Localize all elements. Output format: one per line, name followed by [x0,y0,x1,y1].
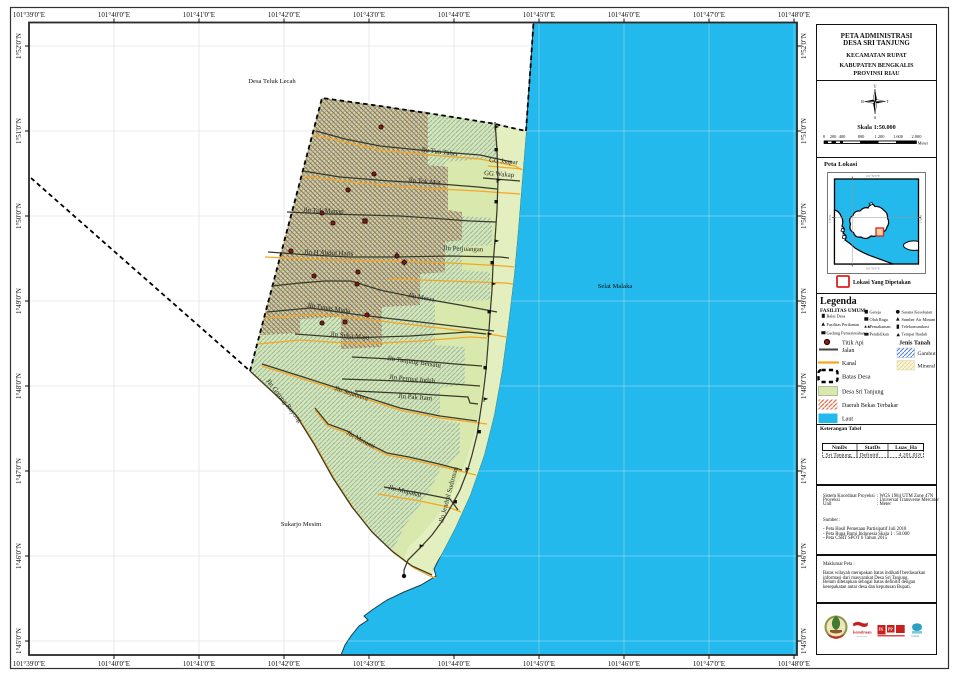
svg-text:1°52'0"N: 1°52'0"N [800,33,808,59]
svg-text:partnership: partnership [857,636,868,638]
svg-text:Luas_Ha: Luas_Ha [895,445,917,451]
svg-text:1.200: 1.200 [875,134,886,139]
svg-text:101°41'0"E: 101°41'0"E [183,11,215,19]
svg-text:NmDs: NmDs [832,445,848,451]
svg-text:101°39'0"E: 101°39'0"E [13,11,45,19]
svg-text:Sarana Kesehatan: Sarana Kesehatan [902,309,934,314]
svg-text:1°49'0"N: 1°49'0"N [800,288,808,314]
svg-text:Sumber Air Minum: Sumber Air Minum [902,317,936,322]
svg-text:1°45'N: 1°45'N [919,214,923,223]
svg-text:Fasilitas Perikanan: Fasilitas Perikanan [827,322,860,327]
svg-text:T: T [886,99,889,104]
svg-text:1°45'0"N: 1°45'0"N [15,628,23,654]
svg-text:GG Jaapar: GG Jaapar [489,157,519,167]
svg-text:Mineral: Mineral [918,364,936,370]
svg-text:Lokasi Yang Dipetakan: Lokasi Yang Dipetakan [853,280,912,286]
svg-text:Daerah Bekas Terbakar: Daerah Bekas Terbakar [842,403,898,409]
svg-text:Olah Raga: Olah Raga [870,317,888,322]
svg-text:Definitif: Definitif [860,451,879,458]
svg-text:kemitraan: kemitraan [853,630,872,635]
svg-text:1°46'0"N: 1°46'0"N [800,543,808,569]
svg-text:101°48'0"E: 101°48'0"E [778,11,810,19]
svg-text:U: U [873,84,876,89]
svg-text:101°43'0"E: 101°43'0"E [353,11,385,19]
svg-text:4.201,018: 4.201,018 [899,452,922,458]
svg-text:S: S [874,115,877,120]
svg-text:1°48'0"N: 1°48'0"N [800,373,808,399]
svg-text:Jln Perjuangan: Jln Perjuangan [443,245,484,253]
svg-text:400: 400 [839,134,846,139]
svg-text:Batas Desa: Batas Desa [842,374,871,381]
svg-text:800: 800 [858,134,865,139]
svg-text:101°44'0"E: 101°44'0"E [438,11,470,19]
svg-text:101°46'0"E: 101°46'0"E [608,11,640,19]
svg-text:Desa Sri Tanjung: Desa Sri Tanjung [842,390,883,396]
svg-text:1°49'0"N: 1°49'0"N [15,288,23,314]
svg-text:1°45'N: 1°45'N [828,214,832,223]
svg-text:1°51'0"N: 1°51'0"N [15,118,23,144]
svg-text:Sri Tanjung: Sri Tanjung [826,452,852,458]
svg-text:Sukarjo Mesim: Sukarjo Mesim [281,521,322,528]
svg-text:JK: JK [879,628,884,632]
svg-text:101°50'0"E: 101°50'0"E [866,174,880,178]
svg-text:Jln Meranti: Jln Meranti [345,430,376,451]
svg-text:Balai Desa: Balai Desa [827,314,846,319]
svg-text:1°48'0"N: 1°48'0"N [15,373,23,399]
svg-text:Pemakaman: Pemakaman [870,324,892,329]
svg-text:101°41'0"E: 101°41'0"E [183,660,215,668]
svg-text:Jln Tok Manap: Jln Tok Manap [303,207,344,215]
svg-text:1°52'0"N: 1°52'0"N [15,33,23,59]
svg-text:Jln Permai Indah: Jln Permai Indah [389,374,436,385]
svg-text:101°45'0"E: 101°45'0"E [523,660,555,668]
svg-text:Jln Tok Mat: Jln Tok Mat [408,177,441,187]
svg-text:1°47'0"N: 1°47'0"N [800,458,808,484]
svg-text:StatDs: StatDs [865,445,882,451]
svg-text:badan: badan [912,634,920,638]
svg-text:Gedung Pemerintahan: Gedung Pemerintahan [827,331,866,336]
svg-text:Jalan: Jalan [842,348,854,354]
svg-text:101°46'0"E: 101°46'0"E [608,660,640,668]
svg-text:Jln Tanjung Bersatu: Jln Tanjung Bersatu [387,355,442,370]
svg-text:1°45'0"N: 1°45'0"N [800,628,808,654]
svg-text:Desa Teluk Lecah: Desa Teluk Lecah [248,78,296,85]
svg-text:101°50'0"E: 101°50'0"E [866,267,880,271]
svg-text:Jln H Abdul Haris: Jln H Abdul Haris [304,249,354,258]
svg-text:101°39'0"E: 101°39'0"E [13,660,45,668]
svg-text:2.000: 2.000 [912,134,923,139]
svg-text:101°40'0"E: 101°40'0"E [98,660,130,668]
svg-text:Laut: Laut [842,417,853,423]
svg-text:Selat Malaka: Selat Malaka [598,283,633,290]
svg-text:Jln Jendral Sudirman: Jln Jendral Sudirman [438,466,460,524]
svg-text:Gambut: Gambut [918,351,936,357]
svg-text:101°45'0"E: 101°45'0"E [523,11,555,19]
svg-text:101°44'0"E: 101°44'0"E [438,660,470,668]
svg-text:PP: PP [888,628,893,632]
svg-text:Jenis Tanah: Jenis Tanah [899,339,931,346]
svg-text:B: B [861,99,864,104]
svg-text:GG Wakap: GG Wakap [484,170,515,179]
svg-text:Meter: Meter [918,141,929,146]
svg-text:101°43'0"E: 101°43'0"E [353,660,385,668]
svg-text:Jln Suka Maju: Jln Suka Maju [330,331,370,341]
svg-text:1°50'0"N: 1°50'0"N [800,203,808,229]
svg-text:101°42'0"E: 101°42'0"E [268,11,300,19]
svg-text:1.600: 1.600 [893,134,904,139]
svg-text:Jln Sejahtera: Jln Sejahtera [333,385,368,402]
svg-text:Jln Gotong Royong: Jln Gotong Royong [264,378,303,425]
svg-text:1°47'0"N: 1°47'0"N [15,458,23,484]
svg-text:101°47'0"E: 101°47'0"E [693,660,725,668]
svg-text:200: 200 [830,134,837,139]
svg-text:Jln Tunas Muda: Jln Tunas Muda [307,302,351,315]
svg-text:101°40'0"E: 101°40'0"E [98,11,130,19]
svg-text:0: 0 [823,134,826,139]
svg-text:Jln Mesra: Jln Mesra [408,292,435,304]
svg-text:101°48'0"E: 101°48'0"E [778,660,810,668]
svg-text:1°46'0"N: 1°46'0"N [15,543,23,569]
svg-text:Telekomunikasi: Telekomunikasi [902,324,930,329]
svg-text:Titik Api: Titik Api [842,340,864,346]
svg-text:Jln Pak Itam: Jln Pak Itam [398,393,433,402]
svg-text:Gereja: Gereja [870,309,882,314]
svg-text:101°42'0"E: 101°42'0"E [268,660,300,668]
svg-text:101°47'0"E: 101°47'0"E [693,11,725,19]
svg-text:1°51'0"N: 1°51'0"N [800,118,808,144]
svg-text:Kanal: Kanal [842,361,857,367]
svg-text:1°50'0"N: 1°50'0"N [15,203,23,229]
